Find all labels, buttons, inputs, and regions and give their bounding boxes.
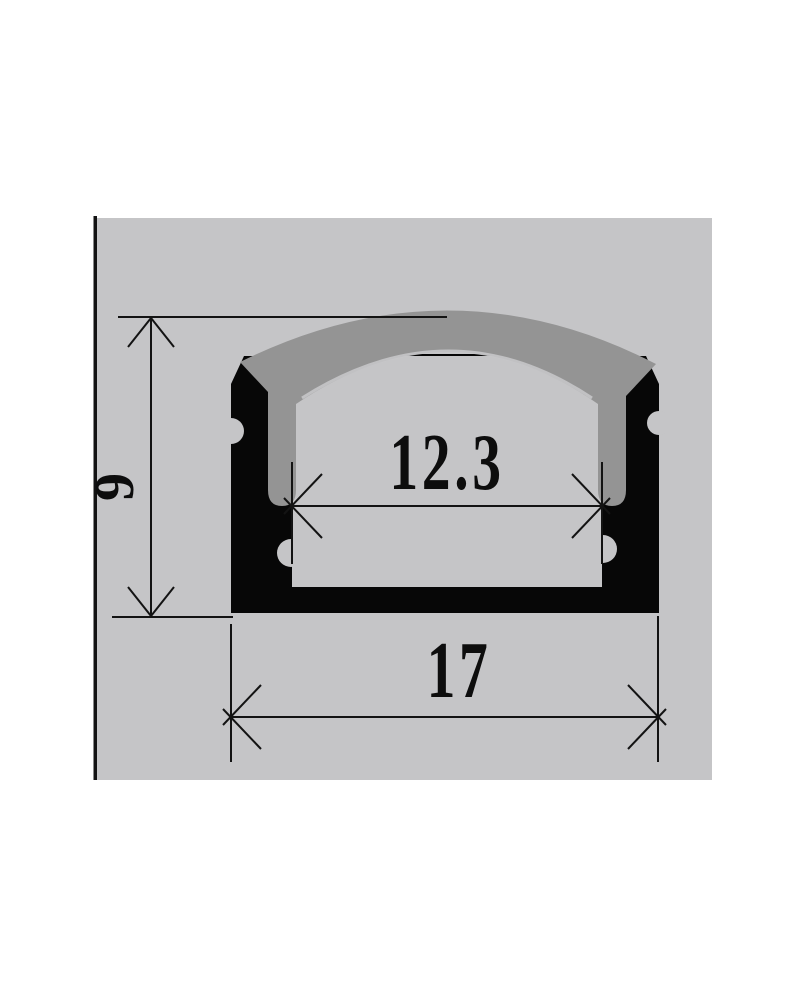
outer-right-notch <box>647 411 671 435</box>
technical-drawing: 9 12.3 17 <box>0 0 807 1000</box>
dimension-label-outer-width: 17 <box>427 627 492 715</box>
outer-left-notch <box>218 418 244 444</box>
dimension-label-inner-width: 12.3 <box>389 419 504 507</box>
dimension-label-height: 9 <box>84 473 146 501</box>
drawing-canvas: 9 12.3 17 <box>0 0 807 1000</box>
